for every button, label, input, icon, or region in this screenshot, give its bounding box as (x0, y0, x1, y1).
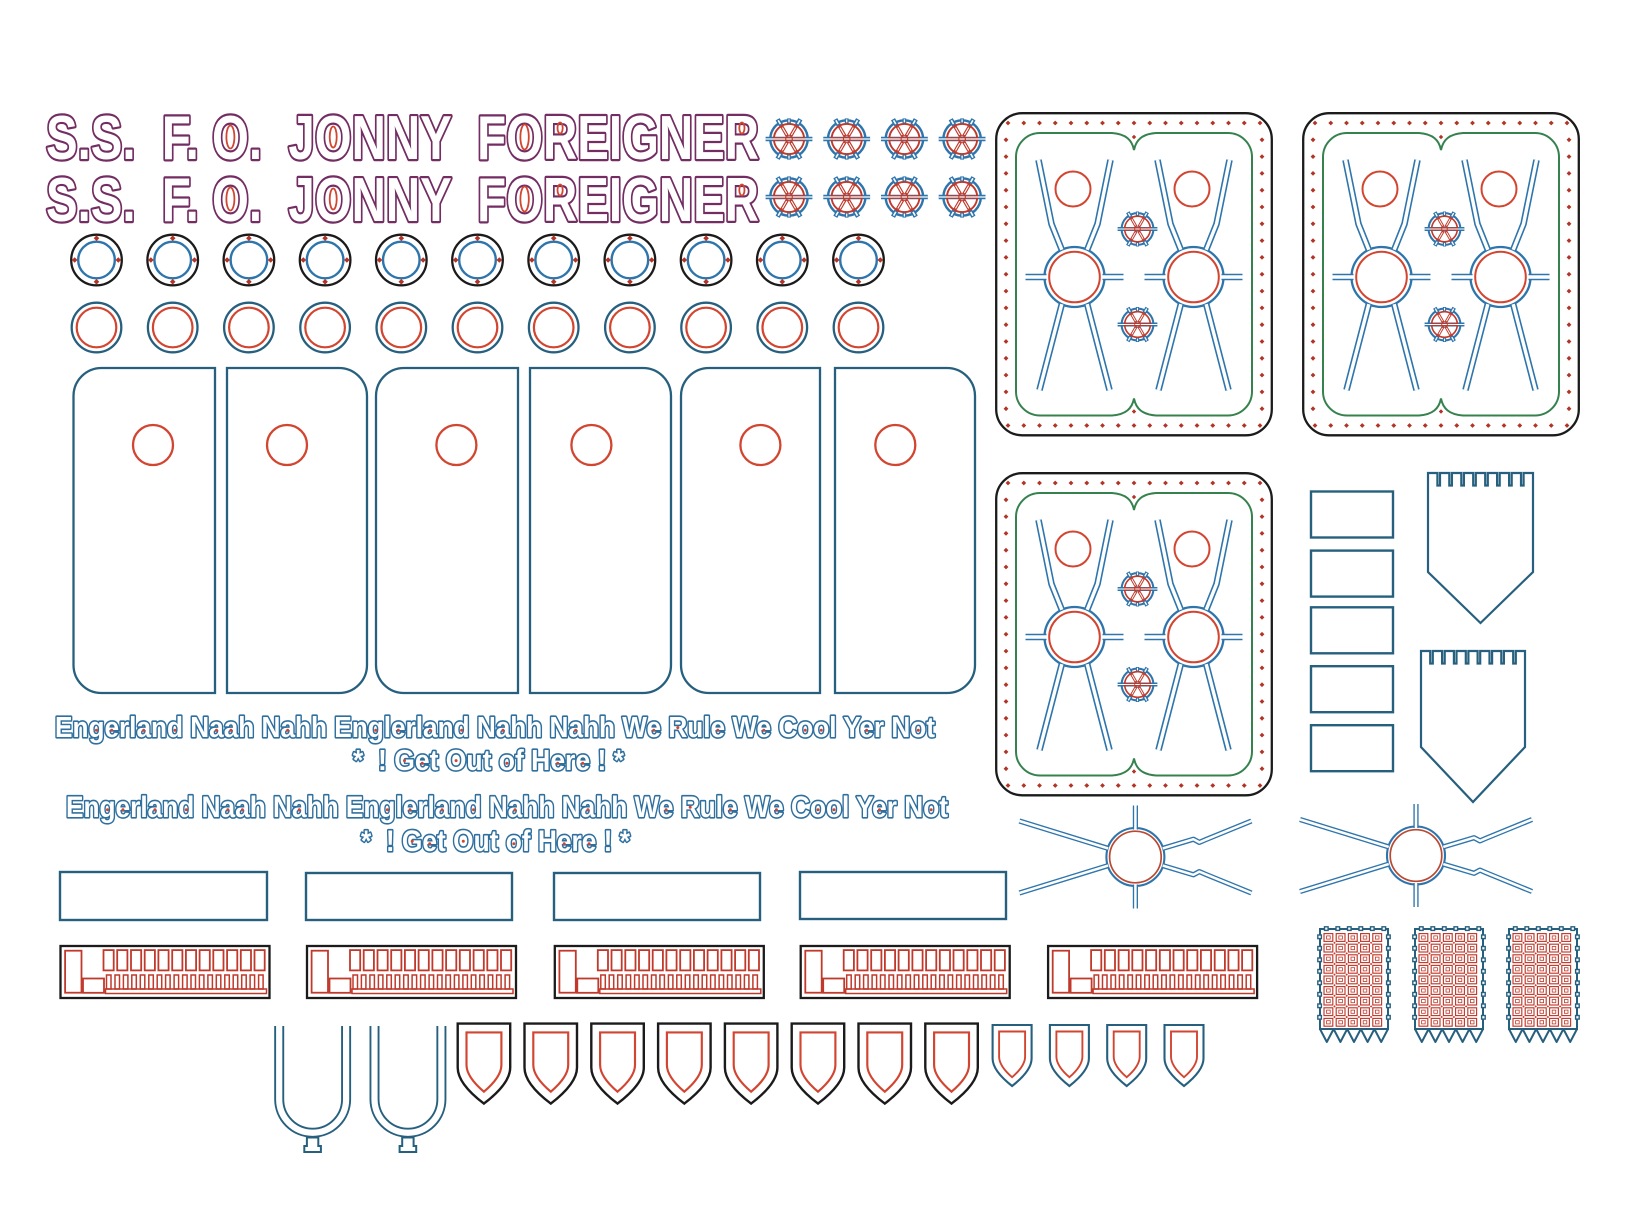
svg-text:Engerland Naah Nahh Englerland: Engerland Naah Nahh Englerland Nahh Nahh… (55, 712, 935, 744)
svg-text:S.S. F. O. JONNY FOREIGNER: S.S. F. O. JONNY FOREIGNER (46, 104, 759, 173)
svg-text:* ! Get Out of Here ! *: * ! Get Out of Here ! * (353, 745, 625, 777)
svg-text:Engerland Naah Nahh Englerland: Engerland Naah Nahh Englerland Nahh Nahh… (66, 791, 948, 824)
svg-text:S.S. F. O. JONNY FOREIGNER: S.S. F. O. JONNY FOREIGNER (46, 166, 759, 235)
svg-text:* ! Get Out of Here ! *: * ! Get Out of Here ! * (361, 825, 630, 858)
